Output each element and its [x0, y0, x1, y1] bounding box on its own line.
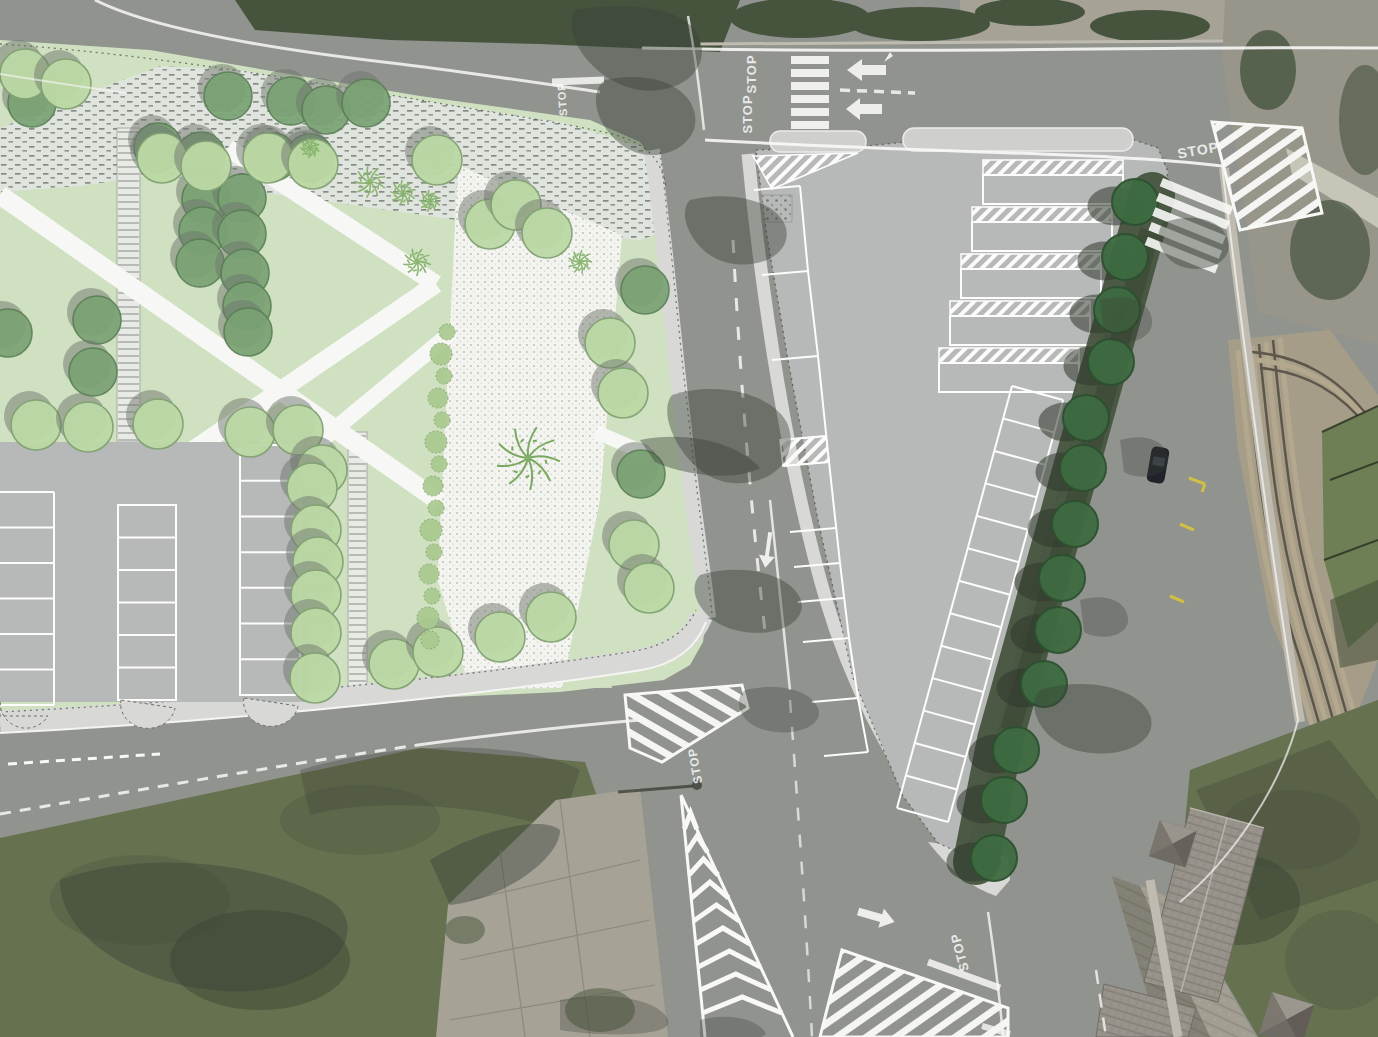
shrub	[424, 588, 440, 604]
shrub	[417, 607, 439, 629]
left-parking-lot	[0, 442, 308, 764]
shrub	[436, 368, 452, 384]
planned-tree	[290, 653, 340, 703]
shrub	[419, 564, 439, 584]
street-tree	[1052, 501, 1098, 547]
platform-island	[770, 131, 866, 152]
street-tree	[1112, 179, 1158, 225]
stop-pavement-text: STOP	[555, 82, 569, 117]
planned-tree	[412, 135, 462, 185]
shrub	[426, 544, 442, 560]
planned-tree	[11, 400, 61, 450]
existing-tree	[224, 308, 272, 356]
shrub	[430, 343, 452, 365]
site-plan-map: STOPSTOPSTOPSTOPSTOPSTOP	[0, 0, 1378, 1037]
shrub	[421, 631, 439, 649]
stop-pavement-text: STOP	[744, 54, 759, 93]
planned-tree	[526, 592, 576, 642]
existing-tree	[69, 348, 117, 396]
street-tree	[971, 835, 1017, 881]
planned-tree	[624, 563, 674, 613]
planned-tree	[63, 402, 113, 452]
shrub	[428, 388, 448, 408]
existing-tree	[73, 296, 121, 344]
street-tree	[981, 777, 1027, 823]
shrub	[428, 500, 444, 516]
planned-tree	[475, 612, 525, 662]
bay-hatch-strip	[983, 160, 1123, 175]
planned-tree	[598, 368, 648, 418]
shrub	[423, 476, 443, 496]
platform-island	[903, 128, 1133, 151]
planned-tree	[522, 208, 572, 258]
shrub	[439, 324, 455, 340]
existing-tree	[204, 72, 252, 120]
stop-pavement-text: STOP	[740, 94, 755, 133]
street-tree	[1063, 395, 1109, 441]
existing-tree	[342, 79, 390, 127]
planned-tree	[413, 627, 463, 677]
street-tree	[1088, 339, 1134, 385]
planned-tree	[133, 399, 183, 449]
shrub	[420, 519, 442, 541]
shrub	[425, 431, 447, 453]
existing-tree	[621, 266, 669, 314]
street-tree	[1060, 445, 1106, 491]
shrub	[431, 456, 447, 472]
street-tree	[1102, 234, 1148, 280]
street-tree	[1039, 555, 1085, 601]
shrub	[434, 412, 450, 428]
street-tree	[1035, 607, 1081, 653]
bay-hatch-strip	[950, 301, 1090, 316]
planned-tree	[181, 141, 231, 191]
aerial-site-plan-screenshot: STOPSTOPSTOPSTOPSTOPSTOP	[0, 0, 1378, 1037]
street-tree	[993, 727, 1039, 773]
bay-hatch-strip	[939, 348, 1079, 363]
